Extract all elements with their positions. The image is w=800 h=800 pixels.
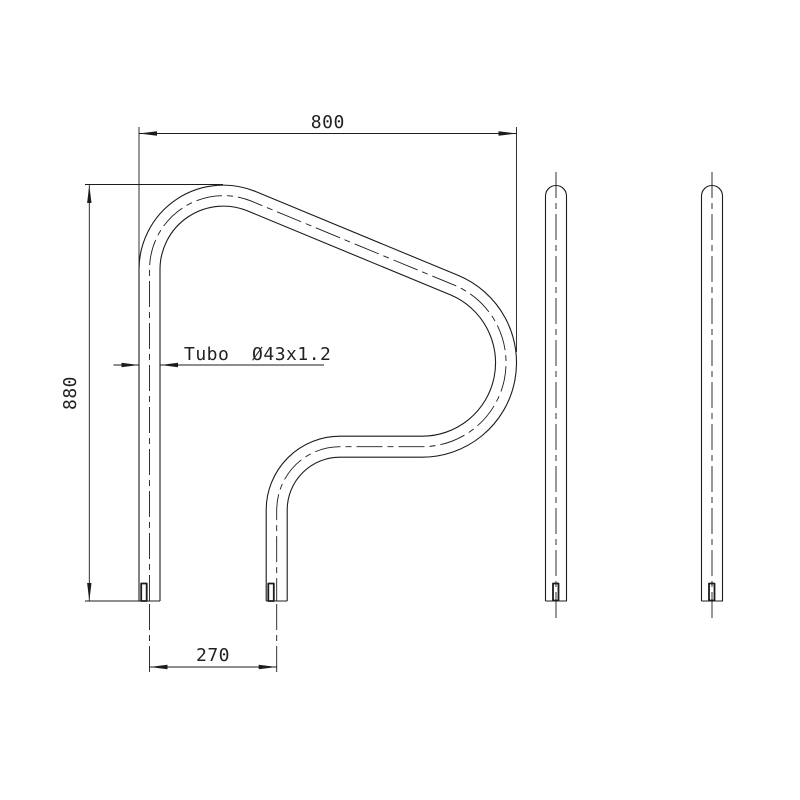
arrowhead-right bbox=[259, 665, 277, 669]
dimension-height-value: 880 bbox=[60, 376, 81, 410]
drawing-sheet: 800 880 270 Tubo Ø43x1.2 bbox=[0, 0, 800, 800]
arrowhead-outside-left bbox=[122, 363, 140, 367]
dimension-spacing-value: 270 bbox=[196, 645, 230, 666]
dimension-spacing: 270 bbox=[150, 604, 277, 672]
tube-outline-inner bbox=[160, 206, 496, 601]
arrowhead-left bbox=[150, 665, 168, 669]
dimension-width-value: 800 bbox=[311, 112, 345, 133]
arrowhead-leader bbox=[161, 363, 179, 367]
tube-spec-label: Tubo Ø43x1.2 bbox=[184, 344, 331, 365]
left-leg-notch bbox=[141, 584, 147, 602]
side-view-tube-2 bbox=[702, 172, 723, 620]
tube-centerline bbox=[150, 196, 507, 601]
arrowhead-right bbox=[499, 131, 517, 136]
side-view-tube-1 bbox=[546, 172, 567, 620]
dimension-width: 800 bbox=[139, 112, 517, 352]
arrowhead-bottom bbox=[87, 583, 91, 601]
right-leg-notch bbox=[268, 584, 274, 602]
tube-outline-outer bbox=[139, 185, 517, 601]
arrowhead-top bbox=[87, 185, 91, 203]
tube-spec-callout: Tubo Ø43x1.2 bbox=[114, 344, 332, 367]
front-view-handrail bbox=[139, 185, 517, 601]
arrowhead-left bbox=[139, 131, 157, 136]
technical-drawing-canvas: 800 880 270 Tubo Ø43x1.2 bbox=[0, 0, 800, 800]
